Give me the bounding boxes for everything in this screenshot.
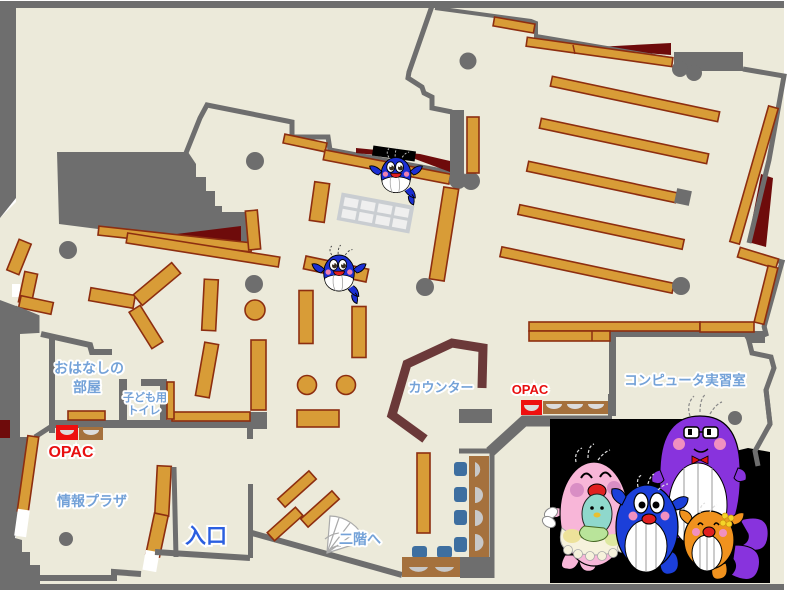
svg-text:コンピュータ実習室: コンピュータ実習室: [624, 372, 746, 388]
svg-text:カウンター: カウンター: [408, 380, 473, 395]
svg-text:OPAC: OPAC: [512, 382, 549, 397]
svg-text:トイレ: トイレ: [128, 404, 161, 417]
svg-text:情報プラザ: 情報プラザ: [57, 493, 127, 509]
svg-text:OPAC: OPAC: [48, 444, 93, 461]
svg-text:おはなしの: おはなしの: [54, 360, 124, 376]
svg-text:入口: 入口: [185, 525, 227, 548]
svg-text:二階へ: 二階へ: [339, 531, 381, 547]
svg-text:子ども用: 子ども用: [123, 391, 167, 404]
svg-text:部屋: 部屋: [73, 379, 101, 395]
